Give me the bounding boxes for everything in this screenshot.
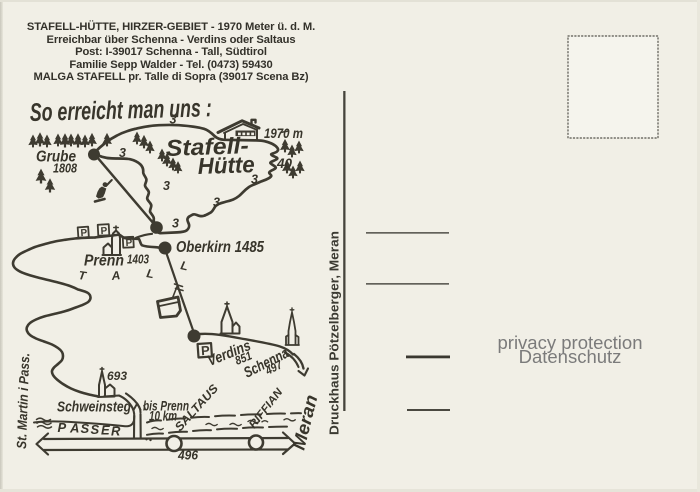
svg-text:Hütte: Hütte xyxy=(197,151,255,179)
svg-text:3: 3 xyxy=(213,196,220,210)
svg-text:1970 m: 1970 m xyxy=(264,125,303,141)
svg-text:RIFFIAN: RIFFIAN xyxy=(247,386,286,431)
svg-text:E: E xyxy=(101,423,110,438)
svg-text:St. Martin i Pass.: St. Martin i Pass. xyxy=(14,353,32,449)
svg-text:3: 3 xyxy=(172,217,179,231)
svg-text:3: 3 xyxy=(163,179,170,193)
svg-text:P: P xyxy=(100,226,108,237)
svg-text:3: 3 xyxy=(119,146,126,160)
svg-text:A: A xyxy=(69,421,79,436)
svg-text:Druckhaus Pötzelberger, Meran: Druckhaus Pötzelberger, Meran xyxy=(327,231,342,435)
svg-text:1403: 1403 xyxy=(127,252,150,267)
svg-text:3: 3 xyxy=(170,113,177,127)
svg-text:Prenn: Prenn xyxy=(84,253,124,270)
svg-text:T: T xyxy=(78,268,89,283)
svg-text:496: 496 xyxy=(177,448,199,463)
svg-text:P: P xyxy=(58,420,67,435)
svg-text:Meran: Meran xyxy=(288,393,321,452)
svg-text:Schweinsteg: Schweinsteg xyxy=(57,399,131,416)
svg-text:P: P xyxy=(125,238,133,249)
svg-text:So erreicht man uns :: So erreicht man uns : xyxy=(29,94,212,127)
svg-text:693: 693 xyxy=(107,369,127,383)
svg-text:S: S xyxy=(91,422,100,437)
svg-text:Oberkirn 1485: Oberkirn 1485 xyxy=(176,239,265,256)
svg-text:A: A xyxy=(110,268,121,283)
svg-text:40: 40 xyxy=(276,156,293,171)
svg-text:L: L xyxy=(145,266,155,281)
svg-text:S: S xyxy=(81,421,90,436)
svg-text:L: L xyxy=(179,258,189,273)
svg-text:1808: 1808 xyxy=(53,162,77,176)
svg-text:R: R xyxy=(111,423,121,438)
